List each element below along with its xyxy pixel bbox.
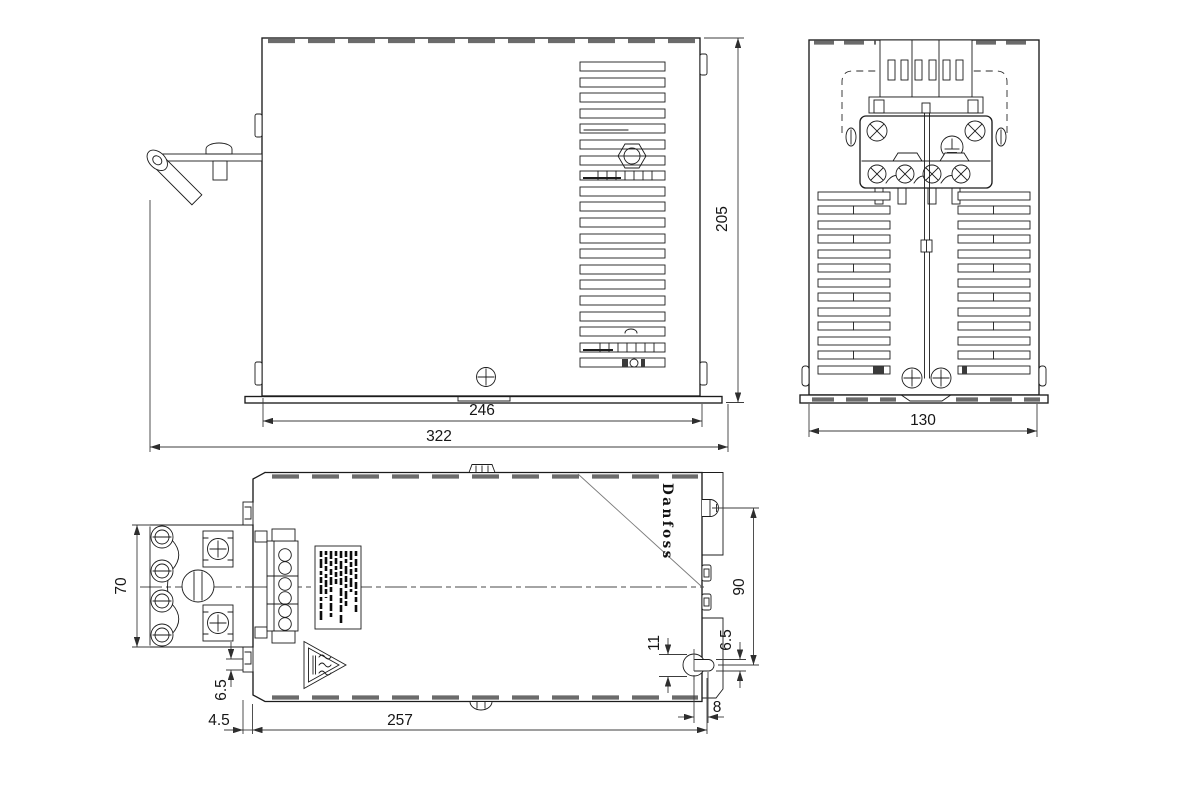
ground-strap-bracket xyxy=(143,143,262,206)
cable-clamp xyxy=(203,605,233,641)
dim-side-width: 130 xyxy=(809,404,1037,437)
dim-flange-offset: 4.5 xyxy=(208,700,252,734)
phillips-screw-icon xyxy=(477,368,496,387)
phillips-screw-icon xyxy=(965,121,985,141)
brand-logo: Danfoss xyxy=(659,483,675,561)
dim-label-keyhole-offset: 6.5 xyxy=(718,629,735,651)
technical-drawing-page: 205 246 322 xyxy=(0,0,1200,800)
dim-label-flange-offset: 4.5 xyxy=(208,712,230,729)
mounting-tab xyxy=(243,647,253,672)
technical-drawing: 205 246 322 xyxy=(0,0,1200,800)
wire-clamp xyxy=(940,153,969,161)
side-view: 130 xyxy=(800,40,1048,437)
dim-label-terminal-depth: 70 xyxy=(113,577,130,595)
mounting-tab xyxy=(700,54,707,75)
dim-label-keyhole-length: 11 xyxy=(646,635,663,651)
vent-slots-left xyxy=(818,192,890,374)
dim-label-front-overall-width: 322 xyxy=(426,428,452,445)
wire-clamp xyxy=(893,153,922,161)
dim-front-height: 205 xyxy=(704,38,744,403)
hot-surface-warning-icon xyxy=(304,642,346,689)
vent-detail-ticks xyxy=(584,171,654,352)
input-terminal-block xyxy=(150,525,267,647)
dim-label-front-base-width: 246 xyxy=(469,402,495,419)
nameplate-label xyxy=(315,546,361,629)
ring-terminal xyxy=(151,590,173,612)
cable-clamp xyxy=(203,531,233,567)
top-view: Danfoss xyxy=(113,465,759,735)
terminal-strip xyxy=(267,529,298,643)
dim-terminal-depth: 70 xyxy=(113,525,150,647)
ring-terminal xyxy=(151,526,173,548)
dim-label-front-height: 205 xyxy=(714,206,731,232)
vent-slots xyxy=(580,62,665,367)
mounting-tab xyxy=(243,502,253,525)
mounting-tab xyxy=(1039,366,1046,386)
dim-label-tab-offset: 6.5 xyxy=(213,679,230,701)
dim-label-keyhole-end-offset: 8 xyxy=(713,699,722,716)
dim-keyhole-offset: 6.5 xyxy=(716,629,746,688)
vent-slots-right xyxy=(958,192,1030,374)
dim-tab-offset: 6.5 xyxy=(213,642,243,701)
dim-keyhole-length: 11 xyxy=(646,635,687,693)
phillips-screw-icon xyxy=(902,368,922,388)
dim-label-stud-to-keyhole: 90 xyxy=(731,578,748,596)
terminal-block xyxy=(846,116,1006,204)
screw-bump xyxy=(470,702,492,711)
front-view: 205 246 322 xyxy=(143,38,744,452)
right-edge-features xyxy=(683,473,723,699)
phillips-screw-icon xyxy=(867,121,887,141)
mounting-tab xyxy=(802,366,809,386)
ring-terminal xyxy=(151,624,173,646)
mounting-tab xyxy=(255,362,262,385)
slotted-screw xyxy=(182,570,214,602)
phillips-screw-icon xyxy=(931,368,951,388)
diagonal-reference-line xyxy=(578,474,701,586)
ring-terminal xyxy=(151,560,173,582)
mounting-tab xyxy=(255,114,262,137)
keyhole-slot xyxy=(683,649,714,683)
dim-label-body-length: 257 xyxy=(387,712,413,729)
dim-label-side-width: 130 xyxy=(910,412,936,429)
mounting-tab xyxy=(700,362,707,385)
screw-bump xyxy=(469,465,495,473)
terminal-connector-block xyxy=(869,40,983,113)
